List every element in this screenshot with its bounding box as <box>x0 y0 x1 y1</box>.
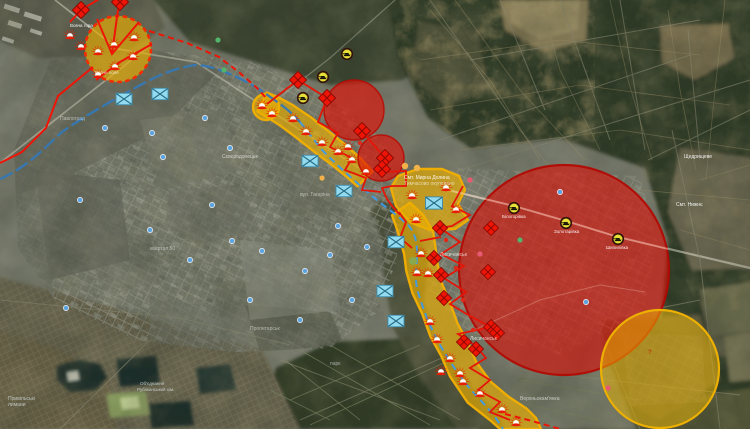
svg-text:лимани: лимани <box>8 402 26 408</box>
svg-text:Об'єднання: Об'єднання <box>140 381 165 386</box>
svg-text:Золотарівка: Золотарівка <box>554 229 580 234</box>
svg-text:Білогорівка: Білогорівка <box>502 214 526 219</box>
svg-text:вул. Гагаріна: вул. Гагаріна <box>300 192 330 198</box>
svg-text:Шипилівка: Шипилівка <box>606 245 629 250</box>
svg-text:Верхньокам'янка: Верхньокам'янка <box>520 396 560 402</box>
svg-text:Щедрищеве: Щедрищеве <box>684 154 712 160</box>
svg-text:Павлоград: Павлоград <box>60 116 85 122</box>
svg-text:Рубіжанський хім.: Рубіжанський хім. <box>137 386 174 392</box>
svg-text:Лисичанськ: Лисичанськ <box>470 336 498 342</box>
svg-text:Вовче поле: Вовче поле <box>95 70 119 75</box>
svg-text:Пролетарськ: Пролетарськ <box>250 326 280 332</box>
svg-text:Смт. Нижнє: Смт. Нижнє <box>676 202 703 208</box>
svg-text:?: ? <box>648 350 652 356</box>
svg-text:квартал 50: квартал 50 <box>150 246 175 252</box>
svg-text:Тимчасово окуповано: Тимчасово окуповано <box>404 181 455 187</box>
svg-text:Лисичанськ: Лисичанськ <box>440 252 468 258</box>
svg-text:парк: парк <box>330 361 341 367</box>
svg-text:Вовча гора: Вовча гора <box>70 23 93 28</box>
svg-text:Сєвєродонецьк: Сєвєродонецьк <box>222 154 259 160</box>
